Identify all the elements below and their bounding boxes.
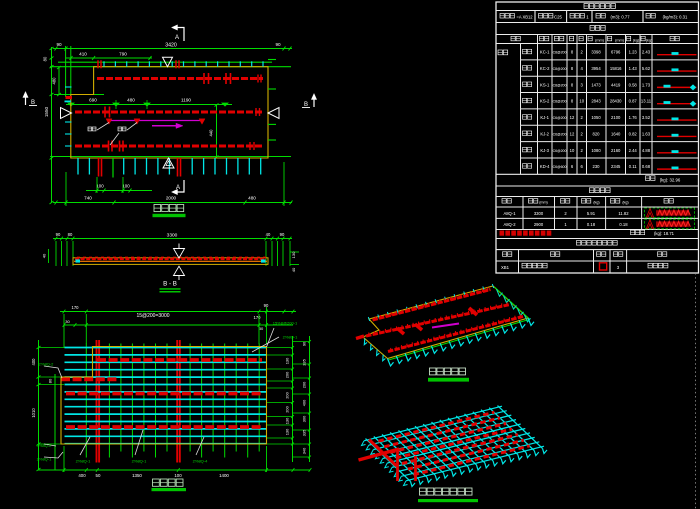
svg-text:A: A [175, 35, 179, 41]
svg-text:2.44: 2.44 [629, 148, 638, 153]
svg-text:C6@200: C6@200 [553, 149, 567, 153]
svg-text:400: 400 [302, 399, 307, 406]
svg-text:(kg): (kg) [593, 201, 599, 205]
svg-text:15816: 15816 [610, 66, 622, 71]
svg-text:480: 480 [248, 196, 256, 201]
svg-text:4419: 4419 [611, 82, 621, 87]
svg-text:100: 100 [96, 184, 104, 189]
svg-text:480: 480 [127, 98, 135, 103]
svg-text:130: 130 [291, 251, 296, 258]
svg-text:C25: C25 [554, 15, 562, 20]
svg-text:KD-4: KD-4 [540, 164, 550, 169]
svg-text:KS-1: KS-1 [540, 82, 550, 87]
svg-text:A: A [176, 185, 180, 191]
svg-text:C8@200: C8@200 [553, 67, 567, 71]
svg-text:170: 170 [254, 315, 262, 320]
svg-text:200: 200 [285, 371, 290, 378]
svg-text:2900: 2900 [534, 222, 544, 227]
svg-text:4.88: 4.88 [642, 148, 651, 153]
svg-text:12: 12 [570, 115, 575, 120]
svg-text:1.76: 1.76 [629, 115, 638, 120]
svg-text:1190: 1190 [181, 98, 191, 103]
svg-text:(kg/m3): 0.31: (kg/m3): 0.31 [663, 15, 688, 20]
svg-text:XB1: XB1 [501, 265, 510, 270]
svg-text:4%8Q-2: 4%8Q-2 [37, 443, 52, 448]
svg-text:100: 100 [174, 473, 182, 478]
svg-text:=A XB12: =A XB12 [516, 15, 533, 20]
svg-text:5.62: 5.62 [642, 66, 651, 71]
svg-text:1010: 1010 [31, 408, 36, 418]
svg-text:480: 480 [52, 77, 57, 85]
svg-text:(mm): (mm) [615, 38, 625, 42]
svg-text:2.43: 2.43 [642, 50, 651, 55]
svg-text:3398: 3398 [591, 50, 601, 55]
svg-text:200: 200 [302, 381, 307, 388]
svg-text:130: 130 [285, 357, 290, 364]
svg-text:2160: 2160 [611, 148, 621, 153]
svg-text:2%8Q-4: 2%8Q-4 [193, 459, 208, 464]
svg-text:80: 80 [43, 56, 48, 61]
svg-text:400: 400 [31, 358, 36, 366]
svg-text:1400: 1400 [219, 473, 229, 478]
svg-text:200: 200 [285, 405, 290, 412]
svg-text:90: 90 [56, 232, 61, 237]
svg-text:3420: 3420 [165, 43, 177, 49]
svg-text:15@200=3000: 15@200=3000 [136, 313, 169, 319]
svg-text:KJ-3: KJ-3 [540, 148, 549, 153]
svg-text:(kg): 32.96: (kg): 32.96 [660, 177, 681, 182]
svg-text:90: 90 [56, 42, 62, 47]
svg-text:40: 40 [266, 232, 271, 237]
svg-text:2000: 2000 [166, 196, 177, 201]
svg-text:3.52: 3.52 [642, 115, 651, 120]
svg-text:2%8Q-1: 2%8Q-1 [37, 457, 52, 462]
svg-text:340: 340 [302, 447, 307, 454]
svg-text:11.82: 11.82 [618, 211, 629, 216]
svg-text:1.73: 1.73 [642, 82, 651, 87]
svg-text:30: 30 [259, 326, 264, 331]
svg-text:C6@200: C6@200 [553, 132, 567, 136]
svg-text:(kg): (kg) [622, 201, 628, 205]
svg-text:3954: 3954 [591, 66, 601, 71]
svg-text:400: 400 [78, 473, 86, 478]
svg-text:(mm): (mm) [595, 38, 605, 42]
svg-text:1640: 1640 [611, 131, 621, 136]
svg-text:6796: 6796 [611, 50, 621, 55]
svg-text:0.87: 0.87 [629, 99, 638, 104]
svg-text:(kg): (kg) [633, 38, 640, 42]
svg-text:335: 335 [302, 430, 307, 437]
svg-text:0.18: 0.18 [587, 222, 596, 227]
svg-text:300: 300 [302, 415, 307, 422]
svg-text:C8@200: C8@200 [553, 51, 567, 55]
svg-text:1.43: 1.43 [629, 66, 638, 71]
svg-text:790: 790 [119, 52, 127, 57]
svg-text:0.18: 0.18 [619, 222, 628, 227]
svg-text:10: 10 [570, 148, 575, 153]
svg-text:2%8Q-1: 2%8Q-1 [132, 459, 147, 464]
svg-text:C8@200: C8@200 [553, 100, 567, 104]
svg-text:80: 80 [48, 378, 53, 383]
svg-text:40: 40 [291, 267, 296, 272]
svg-text:1473: 1473 [591, 82, 601, 87]
svg-text:820: 820 [593, 131, 601, 136]
svg-text:740: 740 [84, 196, 92, 201]
svg-text:10: 10 [579, 99, 584, 104]
svg-text:50: 50 [96, 473, 101, 478]
svg-text:13.11: 13.11 [641, 99, 652, 104]
svg-text:230: 230 [593, 164, 601, 169]
svg-text:C8@200: C8@200 [553, 83, 567, 87]
svg-text:(mm): (mm) [539, 201, 548, 205]
svg-text:(m3): 0.77: (m3): 0.77 [610, 15, 630, 20]
svg-text:335: 335 [302, 359, 307, 366]
svg-text:C6@200: C6@200 [553, 116, 567, 120]
svg-text:2%8Q-1: 2%8Q-1 [283, 335, 298, 340]
svg-text:A8Q-2: A8Q-2 [503, 222, 516, 227]
svg-text:(kg): (kg) [646, 38, 653, 42]
svg-text:3300: 3300 [167, 233, 178, 239]
svg-text:2345: 2345 [611, 164, 621, 169]
svg-text:30: 30 [65, 319, 70, 324]
svg-text:1080: 1080 [591, 148, 601, 153]
svg-text:40: 40 [42, 253, 47, 258]
svg-text:200: 200 [285, 391, 290, 398]
svg-text:690: 690 [89, 98, 97, 103]
svg-text:KJ-1: KJ-1 [540, 115, 549, 120]
svg-text:2%8Q-1: 2%8Q-1 [76, 459, 91, 464]
svg-text:2843: 2843 [591, 99, 601, 104]
svg-text:C6@600: C6@600 [553, 165, 567, 169]
svg-text:130: 130 [285, 417, 290, 424]
svg-text:2100: 2100 [611, 115, 621, 120]
svg-text:12: 12 [570, 131, 575, 136]
svg-text:KC-1: KC-1 [540, 50, 550, 55]
svg-text:410: 410 [79, 52, 87, 57]
svg-text:440: 440 [209, 129, 214, 137]
svg-text:KJ-2: KJ-2 [540, 131, 549, 136]
svg-text:B - B: B - B [163, 281, 177, 288]
svg-text:90: 90 [280, 232, 285, 237]
svg-text:1050: 1050 [591, 115, 601, 120]
svg-text:80: 80 [68, 232, 73, 237]
svg-text:130: 130 [285, 428, 290, 435]
svg-text:1550: 1550 [44, 106, 49, 117]
svg-text:1.23: 1.23 [629, 50, 638, 55]
svg-text:100: 100 [122, 184, 130, 189]
svg-text:0.68: 0.68 [642, 164, 651, 169]
svg-text:KS-2: KS-2 [540, 99, 550, 104]
svg-text:0.58: 0.58 [629, 82, 638, 87]
svg-text:3300: 3300 [534, 211, 544, 216]
svg-text:5.91: 5.91 [587, 211, 596, 216]
svg-text:170: 170 [72, 305, 80, 310]
svg-text:28430: 28430 [610, 99, 622, 104]
svg-text:90: 90 [275, 42, 281, 47]
svg-text:1.63: 1.63 [642, 131, 651, 136]
svg-text:0.11: 0.11 [629, 164, 638, 169]
svg-text:(kg): 18.71: (kg): 18.71 [654, 231, 675, 236]
svg-text:2%8Q-2: 2%8Q-2 [39, 362, 54, 367]
svg-text:A8Q-1: A8Q-1 [503, 211, 516, 216]
svg-text:1350: 1350 [132, 473, 142, 478]
svg-text:KC-2: KC-2 [540, 66, 550, 71]
svg-text:15%8@200-1: 15%8@200-1 [273, 321, 298, 326]
svg-text:0.82: 0.82 [629, 131, 638, 136]
